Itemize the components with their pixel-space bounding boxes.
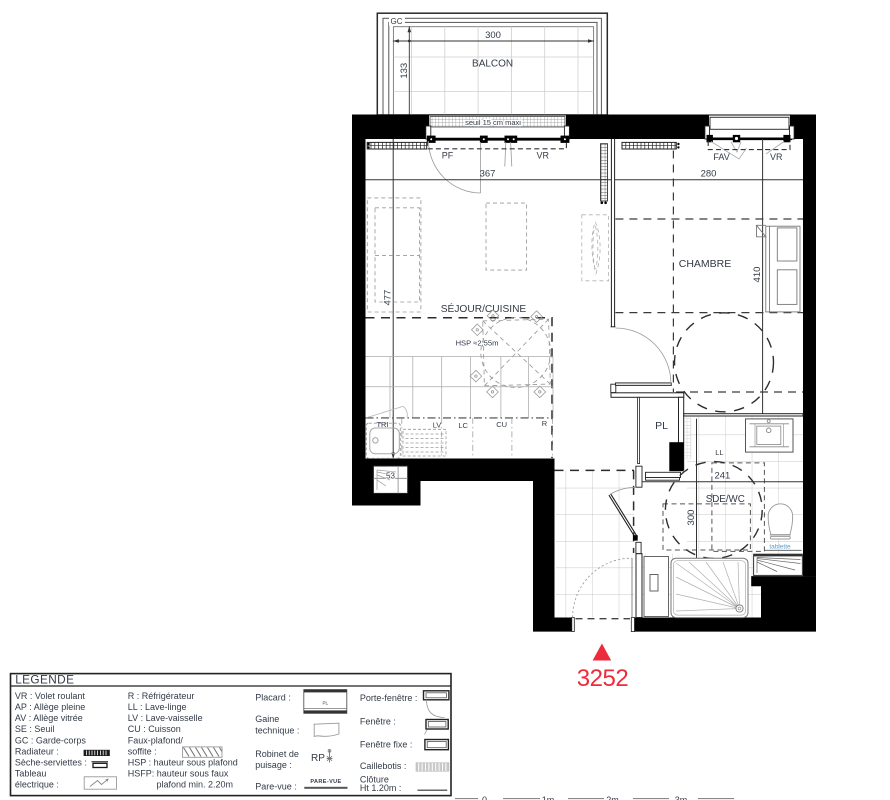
svg-text:CU : Cuisson: CU : Cuisson xyxy=(128,724,181,734)
svg-text:Porte-fenêtre :: Porte-fenêtre : xyxy=(360,693,418,703)
svg-text:Pare-vue :: Pare-vue : xyxy=(255,781,297,791)
svg-text:BALCON: BALCON xyxy=(472,58,513,69)
svg-text:Robinet de: Robinet de xyxy=(255,749,299,759)
svg-text:tablette: tablette xyxy=(769,544,791,551)
svg-text:GC: GC xyxy=(391,17,403,26)
svg-text:300: 300 xyxy=(686,510,697,526)
svg-text:HSP ≈2,55m: HSP ≈2,55m xyxy=(456,339,499,348)
svg-text:Placard :: Placard : xyxy=(255,692,291,702)
svg-text:477: 477 xyxy=(383,290,394,306)
svg-text:0: 0 xyxy=(482,795,487,800)
svg-text:SÉJOUR/CUISINE: SÉJOUR/CUISINE xyxy=(441,302,527,315)
svg-text:CU: CU xyxy=(496,420,507,429)
svg-text:241: 241 xyxy=(714,470,730,481)
svg-text:soffite :: soffite : xyxy=(128,746,157,756)
svg-text:R : Réfrigérateur: R : Réfrigérateur xyxy=(128,691,195,701)
svg-text:LL: LL xyxy=(715,448,723,457)
svg-text:VR: VR xyxy=(537,151,550,161)
svg-text:puisage :: puisage : xyxy=(255,760,292,770)
svg-text:RP: RP xyxy=(311,753,325,764)
svg-text:3m: 3m xyxy=(675,795,688,800)
svg-text:367: 367 xyxy=(480,169,496,180)
svg-text:PL: PL xyxy=(655,420,668,432)
svg-text:133: 133 xyxy=(399,63,410,79)
svg-text:PL: PL xyxy=(322,700,328,705)
svg-text:2m: 2m xyxy=(606,795,619,800)
svg-text:SDE/WC: SDE/WC xyxy=(706,494,745,505)
svg-text:HSFP: hauteur sous faux: HSFP: hauteur sous faux xyxy=(128,769,229,779)
svg-text:410: 410 xyxy=(752,267,763,283)
svg-text:Radiateur :: Radiateur : xyxy=(15,746,59,756)
svg-text:CHAMBRE: CHAMBRE xyxy=(679,258,732,270)
svg-text:AV : Allège vitrée: AV : Allège vitrée xyxy=(15,713,83,723)
svg-text:PARE-VUE: PARE-VUE xyxy=(310,779,341,785)
svg-text:3252: 3252 xyxy=(577,665,629,692)
svg-text:Faux-plafond/: Faux-plafond/ xyxy=(128,735,184,745)
svg-text:280: 280 xyxy=(701,169,717,180)
svg-text:Sèche-serviettes :: Sèche-serviettes : xyxy=(15,758,87,768)
svg-text:Gaine: Gaine xyxy=(255,714,279,724)
svg-text:FAV: FAV xyxy=(713,152,729,162)
svg-text:technique :: technique : xyxy=(255,725,299,735)
svg-text:LV : Lave-vaisselle: LV : Lave-vaisselle xyxy=(128,713,203,723)
svg-text:LV: LV xyxy=(433,421,442,430)
svg-text:PF: PF xyxy=(442,150,454,160)
svg-text:53: 53 xyxy=(386,472,395,481)
svg-text:LC: LC xyxy=(458,421,468,430)
svg-text:R: R xyxy=(542,419,548,428)
svg-text:AP : Allège pleine: AP : Allège pleine xyxy=(15,702,85,712)
svg-text:seuil 15 cm maxi: seuil 15 cm maxi xyxy=(465,118,521,127)
svg-text:300: 300 xyxy=(485,30,501,41)
svg-text:VR : Volet roulant: VR : Volet roulant xyxy=(15,691,86,701)
svg-text:Fenêtre :: Fenêtre : xyxy=(360,717,396,727)
svg-text:Fenêtre fixe :: Fenêtre fixe : xyxy=(360,739,413,749)
svg-text:1m: 1m xyxy=(542,795,555,800)
svg-text:VR: VR xyxy=(770,152,783,162)
svg-text:LL : Lave-linge: LL : Lave-linge xyxy=(128,702,187,712)
svg-text:électrique :: électrique : xyxy=(15,780,59,790)
svg-text:Caillebotis :: Caillebotis : xyxy=(360,761,407,771)
svg-text:Tableau: Tableau xyxy=(15,769,47,779)
svg-text:SE : Seuil: SE : Seuil xyxy=(15,724,55,734)
svg-text:LEGENDE: LEGENDE xyxy=(15,673,74,687)
svg-text:TRI: TRI xyxy=(376,420,388,429)
svg-text:GC : Garde-corps: GC : Garde-corps xyxy=(15,735,87,745)
svg-text:HSP : hauteur sous plafond: HSP : hauteur sous plafond xyxy=(128,758,238,768)
svg-text:Ht 1.20m :: Ht 1.20m : xyxy=(360,783,402,793)
svg-text:plafond min. 2.20m: plafond min. 2.20m xyxy=(157,780,234,790)
